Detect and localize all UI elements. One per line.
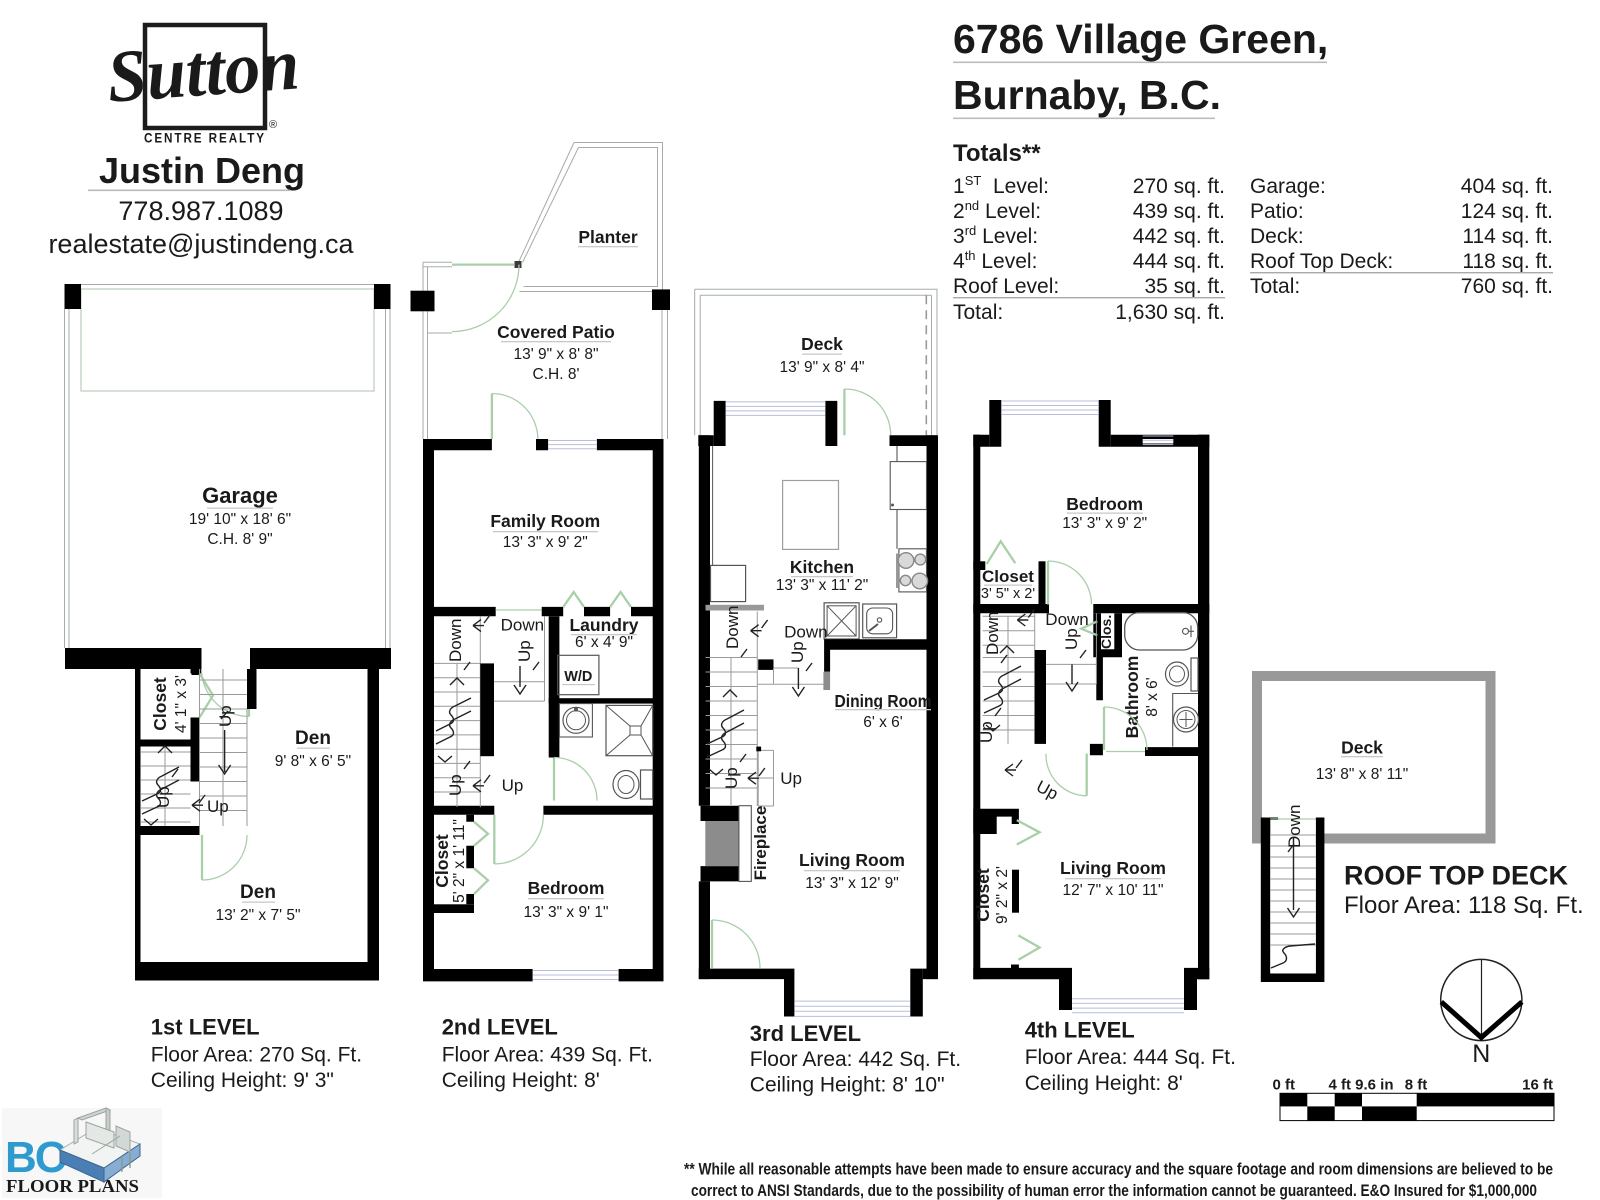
svg-text:Garage:: Garage: — [1250, 175, 1326, 198]
svg-text:444 sq. ft.: 444 sq. ft. — [1133, 250, 1225, 273]
svg-text:ROOF TOP DECK: ROOF TOP DECK — [1344, 861, 1569, 891]
svg-text:19' 10" x 18' 6": 19' 10" x 18' 6" — [189, 511, 291, 528]
svg-text:Down: Down — [983, 612, 1002, 655]
svg-text:C.H. 8': C.H. 8' — [533, 366, 580, 383]
svg-text:Planter: Planter — [578, 227, 638, 247]
svg-text:Dining Room: Dining Room — [835, 691, 932, 711]
svg-text:Closet: Closet — [973, 868, 993, 922]
svg-text:Up: Up — [502, 776, 524, 795]
svg-text:Total:: Total: — [1250, 275, 1300, 298]
svg-text:13' 3" x 9' 2": 13' 3" x 9' 2" — [503, 534, 588, 551]
svg-text:778.987.1089: 778.987.1089 — [118, 196, 283, 226]
svg-text:Deck: Deck — [1341, 738, 1383, 758]
svg-text:Up: Up — [154, 786, 173, 808]
svg-text:114 sq. ft.: 114 sq. ft. — [1462, 225, 1553, 248]
svg-text:6786 Village Green,: 6786 Village Green, — [953, 16, 1328, 62]
svg-text:9' 8" x 6' 5": 9' 8" x 6' 5" — [275, 753, 351, 770]
svg-text:16 ft: 16 ft — [1522, 1077, 1553, 1094]
svg-text:Down: Down — [446, 619, 465, 662]
svg-text:correct to ANSI Standards, due: correct to ANSI Standards, due to the po… — [691, 1182, 1537, 1200]
svg-text:C.H. 8' 9": C.H. 8' 9" — [207, 531, 272, 548]
svg-text:13' 3" x 12' 9": 13' 3" x 12' 9" — [805, 875, 899, 892]
svg-text:4 ft 9.6 in: 4 ft 9.6 in — [1328, 1077, 1393, 1094]
svg-text:118 sq. ft.: 118 sq. ft. — [1462, 250, 1553, 273]
svg-text:3' 5" x 2': 3' 5" x 2' — [981, 586, 1035, 602]
svg-text:Down: Down — [784, 622, 827, 641]
svg-text:Bedroom: Bedroom — [528, 878, 605, 898]
svg-text:Up: Up — [780, 769, 802, 788]
svg-text:13' 3" x 9' 2": 13' 3" x 9' 2" — [1062, 515, 1147, 532]
svg-text:Up: Up — [1062, 628, 1081, 650]
svg-text:6' x 4' 9": 6' x 4' 9" — [575, 634, 633, 651]
svg-text:Kitchen: Kitchen — [790, 557, 854, 577]
svg-text:Deck:: Deck: — [1250, 225, 1304, 248]
svg-text:124 sq. ft.: 124 sq. ft. — [1461, 200, 1553, 223]
svg-text:Fireplace: Fireplace — [751, 806, 770, 881]
svg-text:760 sq. ft.: 760 sq. ft. — [1461, 275, 1553, 298]
svg-text:BC: BC — [5, 1133, 66, 1182]
svg-text:4' 1" x 3': 4' 1" x 3' — [173, 675, 190, 733]
svg-text:Justin Deng: Justin Deng — [99, 150, 305, 191]
svg-text:Up: Up — [515, 640, 534, 662]
svg-text:Floor Area: 270 Sq. Ft.: Floor Area: 270 Sq. Ft. — [151, 1044, 362, 1067]
svg-text:6' x 6': 6' x 6' — [863, 714, 903, 731]
svg-text:13' 2" x 7' 5": 13' 2" x 7' 5" — [215, 907, 300, 924]
svg-text:Clos.: Clos. — [1098, 615, 1114, 649]
svg-text:** While all reasonable attemp: ** While all reasonable attempts have be… — [684, 1161, 1553, 1179]
svg-text:9' 2" x 2': 9' 2" x 2' — [994, 866, 1011, 924]
svg-text:Den: Den — [240, 882, 276, 903]
svg-text:404 sq. ft.: 404 sq. ft. — [1461, 175, 1553, 198]
svg-text:Closet: Closet — [982, 567, 1034, 586]
svg-text:Deck: Deck — [801, 334, 843, 354]
svg-text:Totals**: Totals** — [953, 140, 1041, 167]
svg-text:Down: Down — [723, 606, 742, 649]
svg-text:N: N — [1472, 1040, 1490, 1068]
svg-text:442 sq. ft.: 442 sq. ft. — [1133, 225, 1225, 248]
svg-text:Living Room: Living Room — [1060, 858, 1166, 878]
svg-text:Up: Up — [977, 721, 996, 743]
svg-text:Floor Area: 442 Sq. Ft.: Floor Area: 442 Sq. Ft. — [750, 1048, 961, 1071]
svg-text:Total:: Total: — [953, 301, 1003, 324]
svg-text:0 ft: 0 ft — [1273, 1077, 1296, 1094]
svg-text:realestate@justindeng.ca: realestate@justindeng.ca — [48, 229, 354, 259]
svg-text:Up: Up — [722, 767, 741, 789]
svg-text:Up: Up — [207, 797, 229, 816]
svg-text:13' 3" x 11' 2": 13' 3" x 11' 2" — [776, 577, 868, 594]
svg-text:W/D: W/D — [564, 669, 592, 685]
svg-text:Living Room: Living Room — [799, 850, 905, 870]
svg-text:Family Room: Family Room — [490, 511, 600, 531]
svg-text:13' 3" x 9' 1": 13' 3" x 9' 1" — [523, 904, 608, 921]
svg-text:Ceiling Height: 8': Ceiling Height: 8' — [442, 1069, 600, 1092]
svg-text:12' 7" x 10' 11": 12' 7" x 10' 11" — [1062, 882, 1163, 899]
svg-text:Down: Down — [1045, 610, 1088, 629]
svg-text:Patio:: Patio: — [1250, 200, 1304, 223]
svg-text:Roof Top Deck:: Roof Top Deck: — [1250, 250, 1393, 273]
svg-text:13' 9" x 8' 8": 13' 9" x 8' 8" — [513, 346, 598, 363]
svg-text:Ceiling Height: 8' 10": Ceiling Height: 8' 10" — [750, 1074, 945, 1097]
svg-text:Ceiling Height: 9' 3": Ceiling Height: 9' 3" — [151, 1069, 334, 1092]
svg-text:8 ft: 8 ft — [1405, 1077, 1428, 1094]
svg-text:Up: Up — [788, 641, 807, 663]
svg-text:Up: Up — [216, 705, 235, 727]
svg-text:439 sq. ft.: 439 sq. ft. — [1133, 200, 1225, 223]
svg-text:4th LEVEL: 4th LEVEL — [1025, 1018, 1135, 1043]
svg-text:Down: Down — [501, 616, 544, 635]
svg-text:Roof Level:: Roof Level: — [953, 275, 1059, 298]
svg-text:Ceiling Height: 8': Ceiling Height: 8' — [1025, 1072, 1183, 1095]
svg-text:Garage: Garage — [202, 483, 278, 508]
svg-text:Up: Up — [446, 774, 465, 796]
svg-text:Sutton: Sutton — [105, 23, 302, 118]
svg-text:Floor Area: 118 Sq. Ft.: Floor Area: 118 Sq. Ft. — [1344, 892, 1584, 919]
svg-text:2nd LEVEL: 2nd LEVEL — [442, 1014, 558, 1039]
svg-text:1st LEVEL: 1st LEVEL — [151, 1014, 260, 1039]
svg-text:270 sq. ft.: 270 sq. ft. — [1133, 175, 1225, 198]
svg-text:®: ® — [269, 119, 277, 131]
svg-text:13' 8" x 8' 11": 13' 8" x 8' 11" — [1316, 766, 1408, 783]
svg-text:FLOOR PLANS: FLOOR PLANS — [6, 1176, 139, 1196]
svg-text:Closet: Closet — [432, 834, 452, 888]
svg-text:Burnaby, B.C.: Burnaby, B.C. — [953, 72, 1221, 118]
svg-text:1,630 sq. ft.: 1,630 sq. ft. — [1115, 301, 1225, 324]
svg-text:35 sq. ft.: 35 sq. ft. — [1144, 275, 1225, 298]
svg-text:3rd LEVEL: 3rd LEVEL — [750, 1021, 861, 1046]
svg-text:Laundry: Laundry — [569, 615, 638, 635]
svg-text:CENTRE REALTY: CENTRE REALTY — [144, 131, 266, 146]
svg-text:Den: Den — [295, 728, 331, 749]
svg-text:Bedroom: Bedroom — [1066, 494, 1143, 514]
svg-text:Floor Area: 439 Sq. Ft.: Floor Area: 439 Sq. Ft. — [442, 1044, 653, 1067]
svg-text:Closet: Closet — [150, 677, 170, 731]
svg-text:13' 9" x 8' 4": 13' 9" x 8' 4" — [779, 359, 864, 376]
svg-text:5' 2" x 1' 11": 5' 2" x 1' 11" — [451, 819, 468, 903]
svg-text:8' x 6': 8' x 6' — [1144, 677, 1161, 717]
svg-text:Covered Patio: Covered Patio — [497, 322, 615, 342]
svg-text:Down: Down — [1285, 805, 1304, 848]
svg-text:Floor Area: 444 Sq. Ft.: Floor Area: 444 Sq. Ft. — [1025, 1046, 1236, 1069]
